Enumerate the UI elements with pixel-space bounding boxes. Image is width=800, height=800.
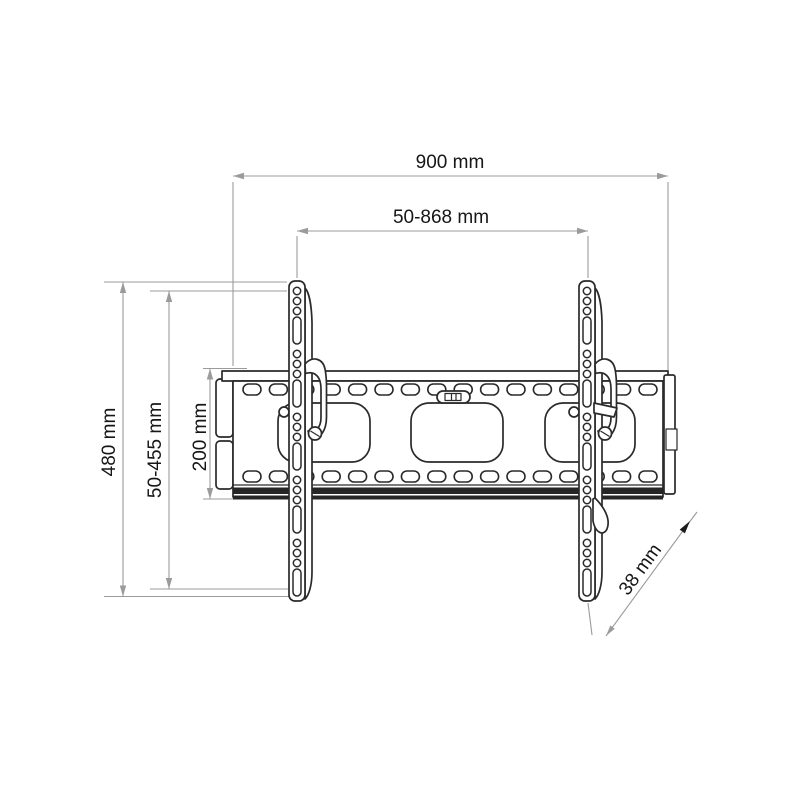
arrowhead-top — [120, 282, 126, 293]
rail-left-end-tab-upper — [216, 379, 233, 437]
arrowhead-left — [297, 228, 308, 234]
arrowhead-bottom — [606, 626, 615, 637]
wall-plate-height-label: 200 mm — [190, 403, 211, 472]
dimension-line — [606, 524, 688, 636]
total-height-label: 480 mm — [99, 408, 120, 477]
arrowhead-top — [207, 369, 213, 380]
mount-height-range-label: 50-455 mm — [145, 402, 166, 498]
right-arm-bottom-hook — [593, 498, 608, 533]
extension-line — [588, 603, 592, 635]
rail-right-end-notch — [666, 429, 677, 450]
arrowhead-right — [577, 228, 588, 234]
rail-cutout-center — [411, 403, 503, 462]
bubble-level — [437, 391, 470, 403]
arrowhead-bottom — [166, 578, 172, 589]
mount-width-range-label: 50-868 mm — [393, 207, 489, 228]
arrowhead-bottom — [120, 586, 126, 597]
total-width-label: 900 mm — [416, 152, 485, 173]
wall-mount-technical-drawing: 900 mm 50-868 mm 480 mm 50-455 mm 200 mm — [0, 0, 800, 800]
rail-left-end-tab-lower — [216, 441, 233, 489]
arrowhead-top — [680, 521, 690, 533]
arrowhead-right — [657, 173, 668, 179]
dimension-mount-width-range: 50-868 mm — [297, 207, 588, 278]
arrowhead-top — [166, 291, 172, 302]
arrowhead-left — [233, 173, 244, 179]
arrowhead-bottom — [207, 488, 213, 499]
depth-label: 38 mm — [615, 540, 666, 599]
bubble-level-vial — [445, 394, 461, 401]
technical-drawing-page: 900 mm 50-868 mm 480 mm 50-455 mm 200 mm — [0, 0, 800, 800]
